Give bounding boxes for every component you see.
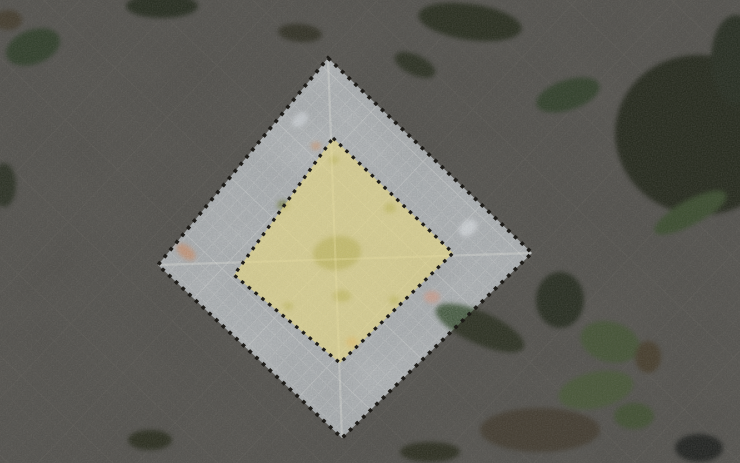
top-grain: [0, 0, 740, 463]
screenshot-root: [0, 0, 740, 463]
satellite-map-canvas[interactable]: [0, 0, 740, 463]
